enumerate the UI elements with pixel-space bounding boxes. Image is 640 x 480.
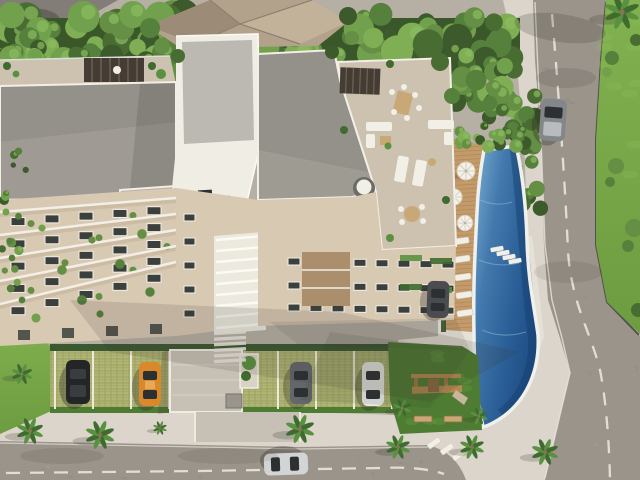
bench — [414, 416, 432, 422]
brown-accent-wall — [302, 252, 350, 306]
balcony-planter — [400, 255, 422, 261]
balcony-planter — [430, 258, 452, 264]
aerial-render-complex: Aerial 3D rendering of a residential con… — [0, 0, 640, 480]
terrace-pergola — [340, 67, 381, 94]
left-tower-roof — [0, 82, 176, 200]
bench — [444, 416, 462, 422]
utility-box — [226, 394, 242, 408]
left-pergola — [84, 58, 144, 82]
palm-shadow-road — [178, 448, 278, 464]
tree-shadow-road — [534, 261, 602, 283]
tree-shadow-road — [536, 68, 596, 88]
balcony-planter — [400, 284, 422, 290]
palm-shadow-road — [20, 448, 104, 464]
